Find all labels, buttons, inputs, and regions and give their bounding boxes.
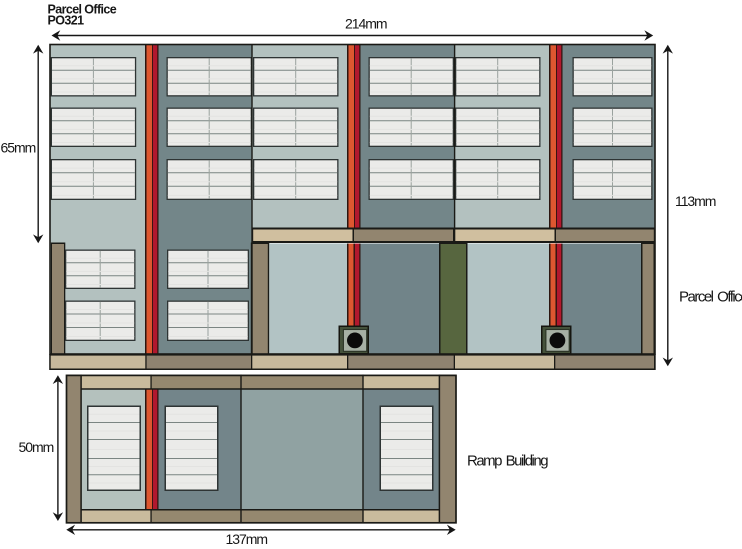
svg-text:137mm: 137mm [226,531,268,547]
svg-text:Parcel Office: Parcel Office [679,289,742,306]
svg-text:PO321: PO321 [48,14,85,28]
svg-text:50mm: 50mm [19,439,54,455]
svg-text:214mm: 214mm [345,16,387,32]
svg-text:65mm: 65mm [1,140,36,156]
svg-text:Ramp Building: Ramp Building [467,453,548,470]
svg-text:113mm: 113mm [675,193,716,209]
